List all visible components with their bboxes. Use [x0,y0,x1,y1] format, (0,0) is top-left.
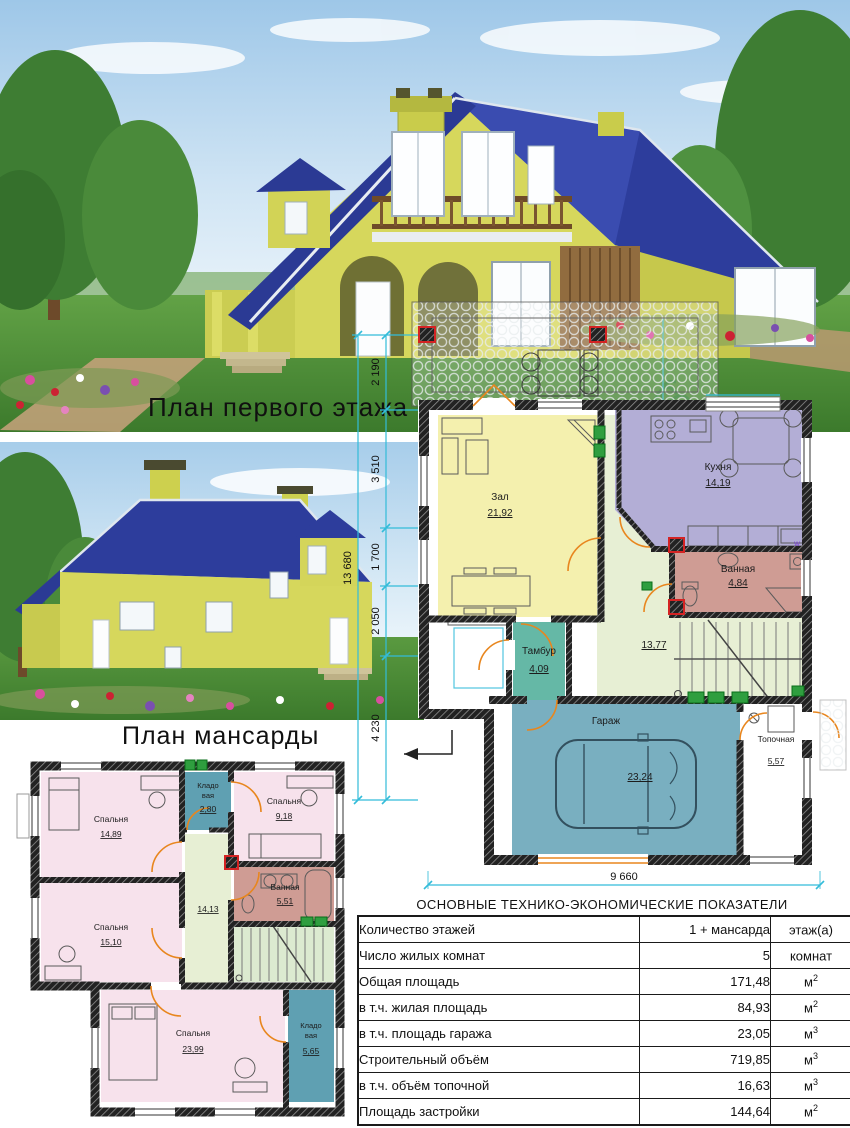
row-unit: м [804,975,813,990]
room-label: Спальня [267,796,302,806]
outside-paving [820,700,846,770]
washer-label: w [793,539,800,548]
room-area: 5,51 [277,896,294,906]
row-value: 5 [763,948,770,963]
room-vestibule [513,622,565,700]
row-unit: м [804,1105,813,1120]
table-row: в т.ч. площадь гаража 23,05 м3 [358,1021,850,1047]
red-post [669,538,684,552]
row-label: в т.ч. объём топочной [359,1078,489,1093]
row-label: Строительный объём [359,1052,489,1067]
table-row: Общая площадь 171,48 м2 [358,969,850,995]
room-label: Зал [491,492,509,503]
row-unit-sup: 2 [813,1103,818,1113]
room-area: 14,19 [705,478,730,489]
window-upper [270,572,288,598]
room-label: вая [202,791,214,800]
room-area: 13,77 [641,640,666,651]
row-unit: этаж(а) [789,923,833,938]
dim-lines [352,335,418,800]
wing [22,604,60,668]
red-post [669,600,684,614]
room-living [438,415,597,617]
dimension-width: 9 660 [424,871,824,889]
room-label: Спальня [94,922,129,932]
table-row: Число жилых комнат 5 комнат [358,943,850,969]
dim-seg-2: 3 510 [370,455,382,483]
room-label: Тамбур [522,645,556,657]
room-area: 4,84 [728,578,748,589]
drawing-sheet: План первого этажа План мансарды [0,0,850,1128]
row-label: Общая площадь [359,974,459,989]
table-row: в т.ч. жилая площадь 84,93 м2 [358,995,850,1021]
window-small [165,647,181,668]
row-unit: м [804,1027,813,1042]
row-unit: м [804,1079,813,1094]
room-area: 5,57 [768,756,785,766]
stairwell [234,926,334,982]
room-area: 23,24 [627,772,652,783]
room-label: Ванная [721,564,755,575]
row-unit-sup: 3 [813,1077,818,1087]
indicators-table: Количество этажей 1 + мансарда этаж(а) Ч… [357,915,850,1126]
row-value: 23,05 [737,1026,770,1041]
room-bedroom-3 [41,882,182,982]
terrace-column [590,327,606,342]
room-label: Ванная [270,882,300,892]
dim-seg-1: 2 190 [370,358,382,386]
row-value: 1 + мансарда [689,922,770,937]
room-area: 4,09 [529,664,549,675]
row-unit: комнат [790,949,832,964]
room-area: 9,18 [276,811,293,821]
table-row: Количество этажей 1 + мансарда этаж(а) [358,916,850,943]
row-value: 171,48 [730,974,770,989]
room-area: 5,65 [303,1046,320,1056]
room-label: Спальня [176,1028,211,1038]
row-unit-sup: 3 [813,1051,818,1061]
room-label: Топочная [758,734,795,744]
room-label: Кладо [300,1021,321,1030]
room-area: 14,89 [100,829,122,839]
row-unit-sup: 2 [813,973,818,983]
dim-width-label: 9 660 [610,871,638,883]
dim-seg-4: 2 050 [370,607,382,635]
chimney-small [598,112,624,136]
row-unit: м [804,1053,813,1068]
room-label: Спальня [94,814,129,824]
row-value: 719,85 [730,1052,770,1067]
room-label: Кухня [705,462,732,473]
room-label: Гараж [592,716,621,727]
back-door [93,620,109,668]
row-value: 144,64 [730,1104,770,1119]
row-label: Количество этажей [359,922,475,937]
row-label: в т.ч. жилая площадь [359,1000,487,1015]
terrace-outline [412,302,718,406]
dim-seg-3: 1 700 [370,543,382,571]
row-label: в т.ч. площадь гаража [359,1026,492,1041]
window [120,602,154,630]
room-label: Кладо [197,781,218,790]
room-label: вая [305,1031,317,1040]
room-area: 14,13 [197,904,219,914]
first-floor-plan: Зал 21,92 Кухня 14,19 Ванная 4,84 w Тамб… [388,288,850,895]
table-row: Строительный объём 719,85 м3 [358,1047,850,1073]
dim-seg-5: 4 230 [370,714,382,742]
room-area: 23,99 [182,1044,204,1054]
exterior-ledge [17,794,29,838]
row-unit: м [804,1001,813,1016]
table-row: в т.ч. объём топочной 16,63 м3 [358,1073,850,1099]
red-post [225,856,238,869]
room-area: 2,80 [200,804,217,814]
row-unit-sup: 3 [813,1025,818,1035]
dim-overall: 13 680 [342,551,354,585]
room-bedroom-1 [41,772,182,878]
row-label: Число жилых комнат [359,948,485,963]
row-label: Площадь застройки [359,1104,480,1119]
table-title: ОСНОВНЫЕ ТЕХНИКО-ЭКОНОМИЧЕСКИЕ ПОКАЗАТЕЛ… [357,897,847,912]
room-area: 21,92 [487,508,512,519]
row-value: 16,63 [737,1078,770,1093]
row-value: 84,93 [737,1000,770,1015]
attic-plan: Спальня 14,89 Кладо вая 2,80 Спальня 9,1… [5,738,360,1128]
row-unit-sup: 2 [813,999,818,1009]
room-area: 15,10 [100,937,122,947]
window-2 [206,602,232,632]
table-row: Площадь застройки 144,64 м2 [358,1099,850,1126]
